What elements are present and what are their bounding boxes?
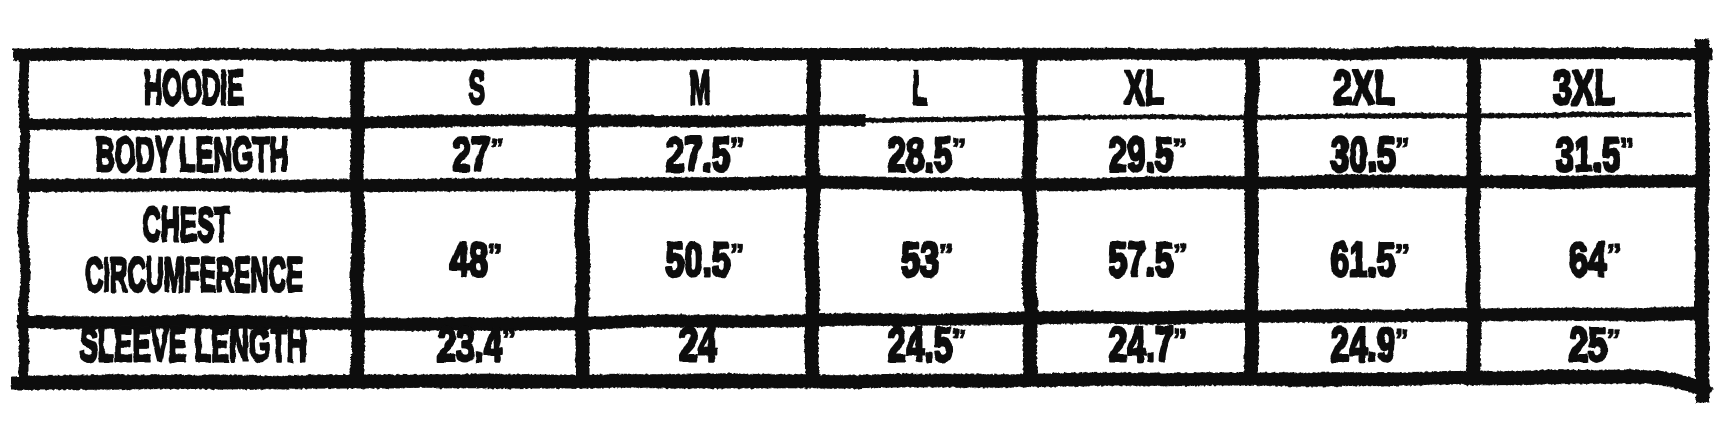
svg-text:SLEEVE LENGTH: SLEEVE LENGTH <box>80 319 307 372</box>
svg-text:61.5: 61.5 <box>1331 234 1396 287</box>
svg-text:”: ” <box>1395 239 1410 272</box>
svg-text:31.5: 31.5 <box>1556 129 1621 182</box>
svg-text:M: M <box>690 62 711 115</box>
svg-text:CIRCUMFERENCE: CIRCUMFERENCE <box>85 249 303 302</box>
svg-text:BODY LENGTH: BODY LENGTH <box>96 129 289 182</box>
svg-text:24: 24 <box>679 319 717 372</box>
svg-text:”: ” <box>730 133 745 166</box>
svg-text:”: ” <box>1173 324 1188 357</box>
svg-text:28.5: 28.5 <box>888 129 953 182</box>
svg-text:”: ” <box>1395 133 1410 166</box>
svg-text:”: ” <box>1620 133 1635 166</box>
svg-text:27.5: 27.5 <box>666 129 731 182</box>
svg-text:25: 25 <box>1569 319 1607 372</box>
svg-text:48: 48 <box>450 234 488 287</box>
svg-text:57.5: 57.5 <box>1109 234 1174 287</box>
svg-text:”: ” <box>952 133 967 166</box>
svg-text:”: ” <box>1395 324 1410 357</box>
svg-text:3XL: 3XL <box>1553 62 1615 115</box>
svg-text:29.5: 29.5 <box>1109 129 1174 182</box>
svg-text:”: ” <box>1173 239 1188 272</box>
svg-text:”: ” <box>502 324 517 357</box>
svg-text:”: ” <box>939 239 954 272</box>
svg-text:HOODIE: HOODIE <box>144 62 244 115</box>
svg-text:”: ” <box>952 324 967 357</box>
svg-text:L: L <box>913 62 928 115</box>
svg-text:2XL: 2XL <box>1333 62 1395 115</box>
svg-text:24.5: 24.5 <box>888 319 953 372</box>
svg-text:CHEST: CHEST <box>143 199 230 252</box>
svg-text:”: ” <box>1173 133 1188 166</box>
svg-text:”: ” <box>490 133 505 166</box>
svg-text:50.5: 50.5 <box>666 234 731 287</box>
svg-text:S: S <box>469 62 486 115</box>
svg-text:27: 27 <box>452 129 490 182</box>
svg-text:23.4: 23.4 <box>438 319 503 372</box>
svg-text:”: ” <box>730 239 745 272</box>
svg-text:XL: XL <box>1124 62 1164 115</box>
svg-text:64: 64 <box>1569 234 1607 287</box>
svg-text:”: ” <box>1607 239 1622 272</box>
svg-text:53: 53 <box>901 234 939 287</box>
svg-text:”: ” <box>1607 324 1622 357</box>
svg-text:”: ” <box>488 239 503 272</box>
svg-text:24.7: 24.7 <box>1109 319 1174 372</box>
svg-text:24.9: 24.9 <box>1331 319 1396 372</box>
svg-text:30.5: 30.5 <box>1331 129 1396 182</box>
